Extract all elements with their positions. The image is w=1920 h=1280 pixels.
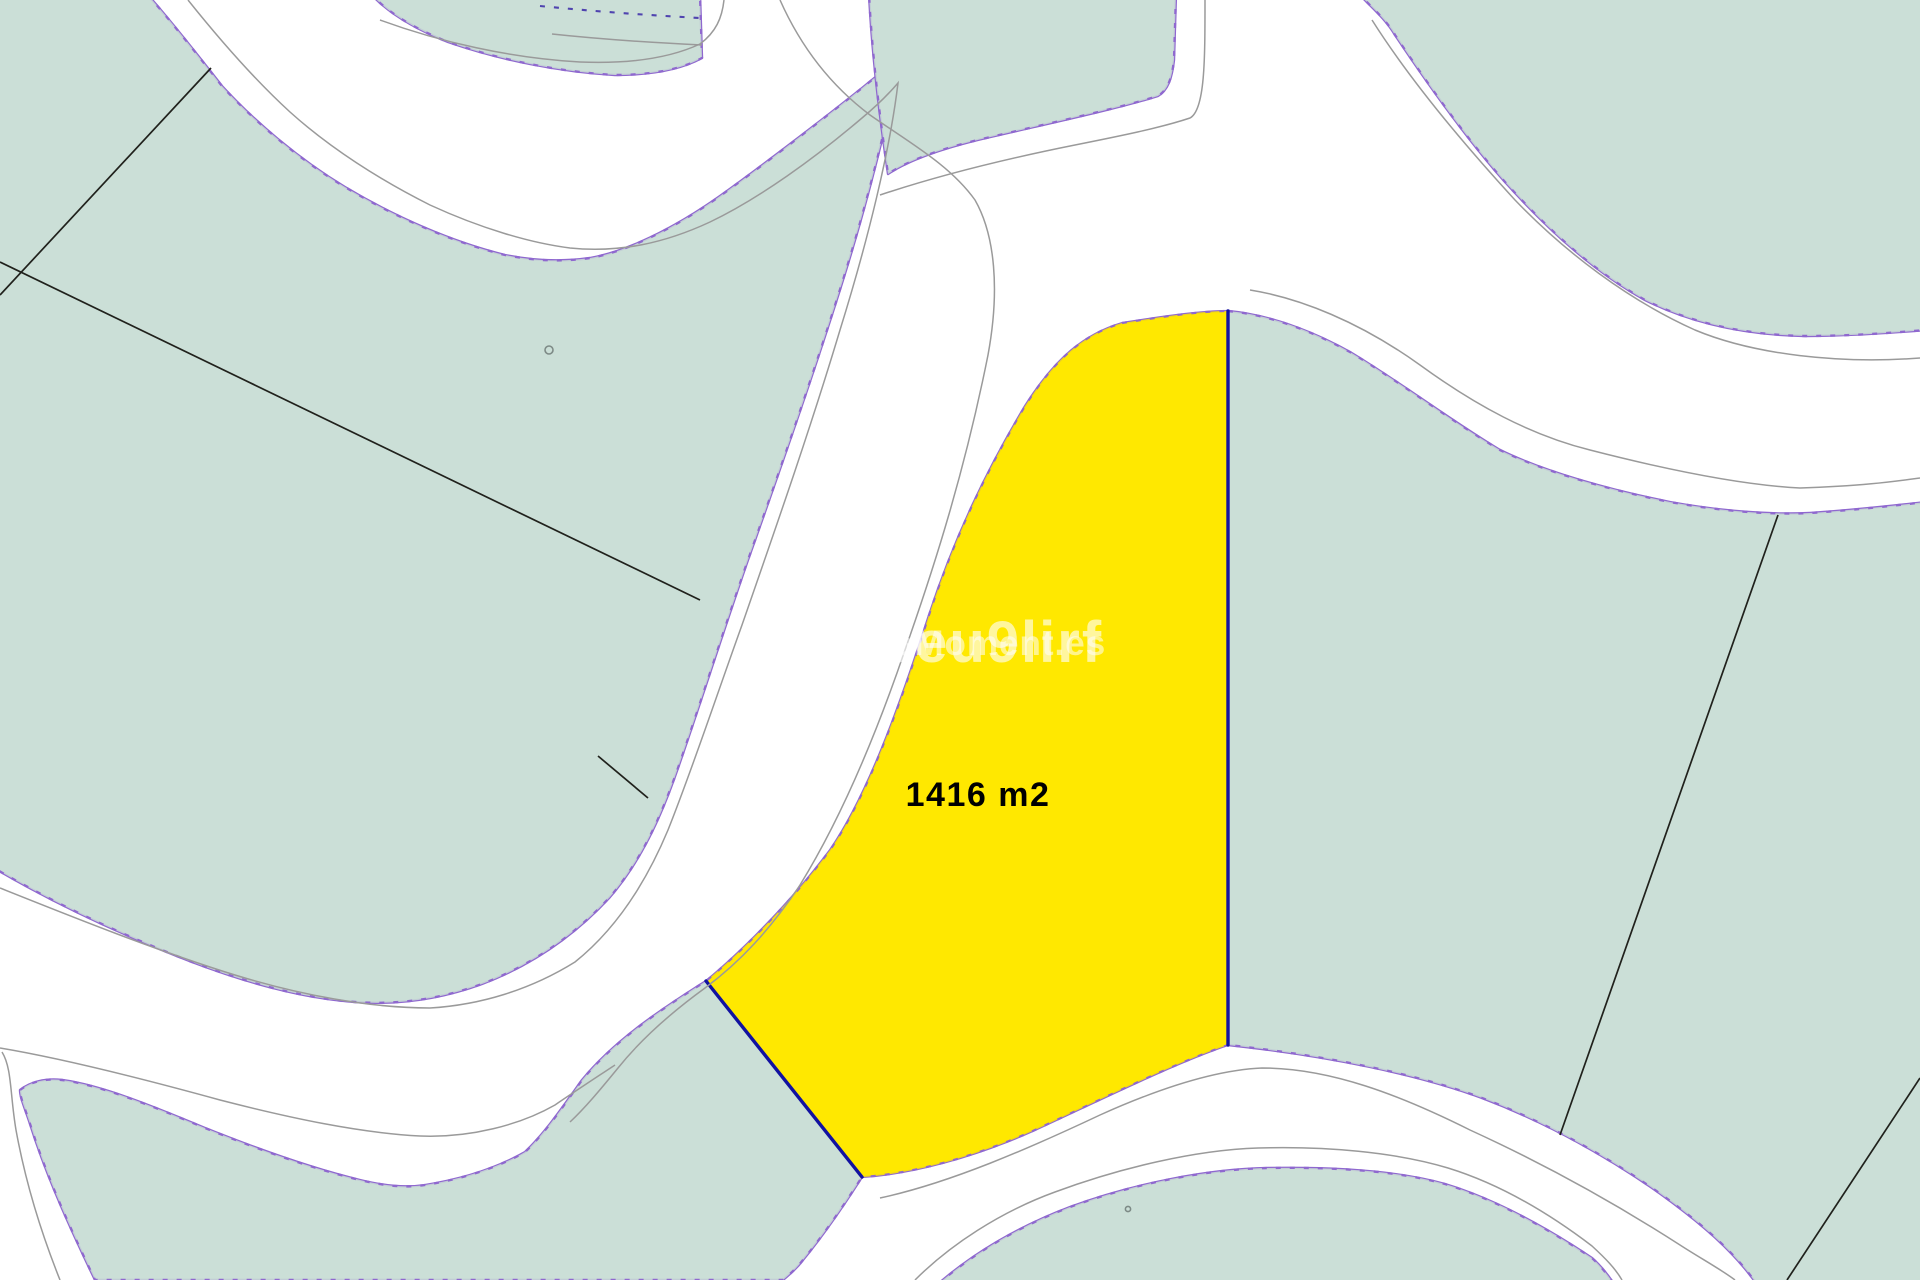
area-label: 1416 m2 <box>906 776 1051 814</box>
map-canvas: moMoment.es 3eu9lirf 1416 m2 <box>0 0 1920 1280</box>
cadastral-map: moMoment.es 3eu9lirf 1416 m2 <box>0 0 1920 1280</box>
watermark-id-text: 3eu9lirf <box>881 610 1103 675</box>
